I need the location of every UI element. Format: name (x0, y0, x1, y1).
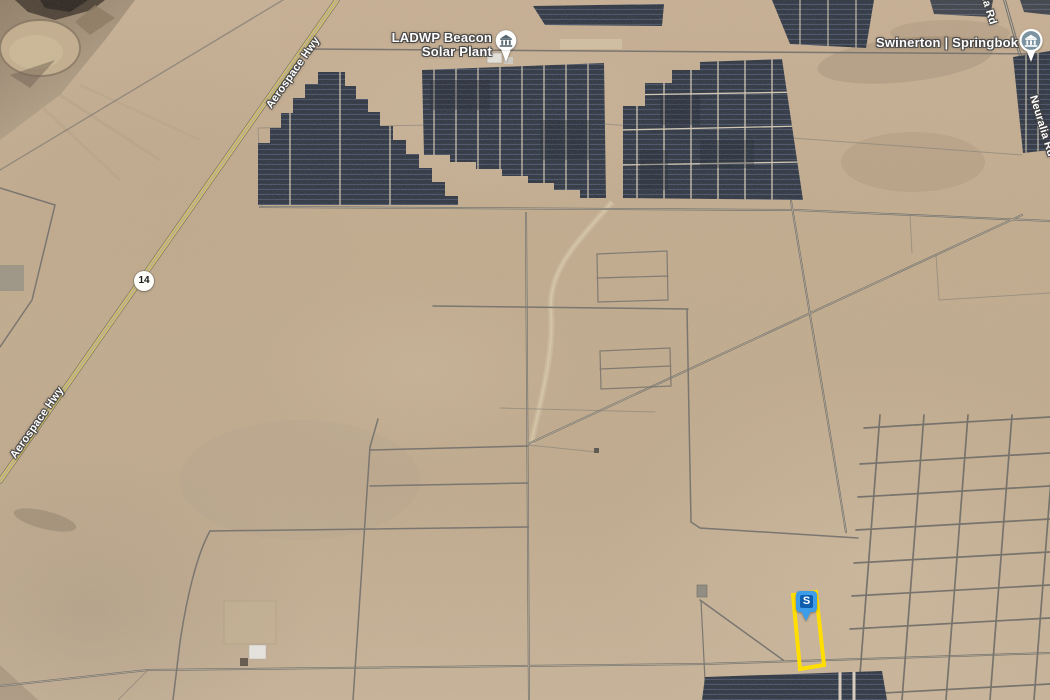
springbok-pin[interactable] (1018, 28, 1044, 64)
label-solar-plant[interactable]: LADWP Beacon Solar Plant (374, 31, 492, 59)
label-springbok[interactable]: Swinerton | Springbok 1 (876, 36, 1024, 50)
parcel-s-marker[interactable]: S (795, 591, 819, 629)
solar-plant-pin[interactable] (493, 28, 519, 64)
satellite-map-canvas[interactable]: LADWP Beacon Solar Plant Swinerton | Spr… (0, 0, 1050, 700)
grain-overlay (0, 0, 1050, 700)
route-14-shield: 14 (134, 271, 154, 291)
label-solar-plant-line1: LADWP Beacon (374, 31, 492, 45)
label-solar-plant-line2: Solar Plant (374, 45, 492, 59)
marker-tail (801, 611, 811, 621)
marker-letter: S (800, 595, 813, 608)
map-render-layer (0, 0, 1050, 700)
